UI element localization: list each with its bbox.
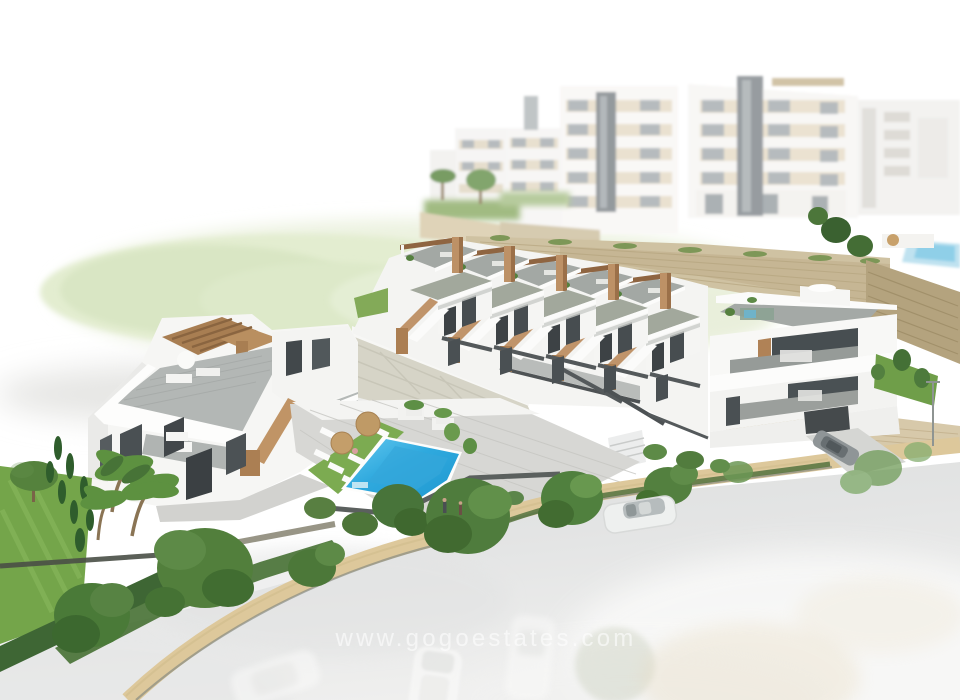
svg-text:www.gogoestates.com: www.gogoestates.com bbox=[335, 625, 637, 652]
